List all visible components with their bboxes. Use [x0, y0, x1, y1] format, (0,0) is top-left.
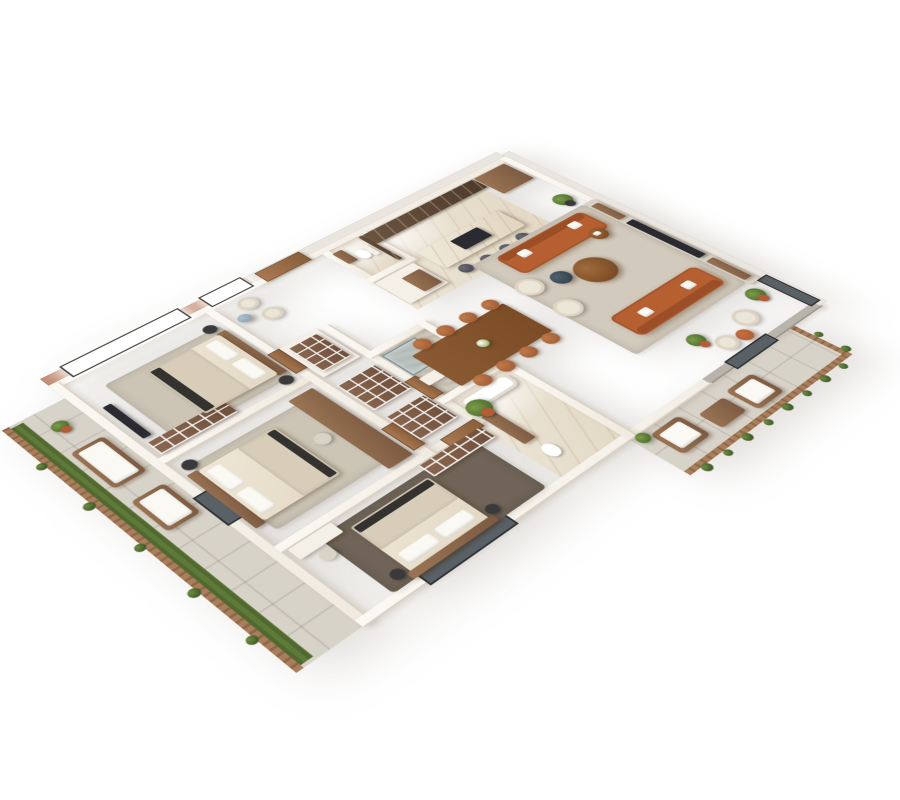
terrace-shrub	[779, 402, 796, 412]
isometric-floor-plan	[0, 156, 883, 726]
terrace-shrub	[762, 418, 776, 427]
terrace-shrub	[817, 374, 833, 384]
terrace-shrub	[721, 448, 735, 457]
terrace-shrub	[837, 362, 850, 370]
terrace-shrub	[800, 389, 814, 397]
floor-plan-stage	[0, 0, 900, 800]
